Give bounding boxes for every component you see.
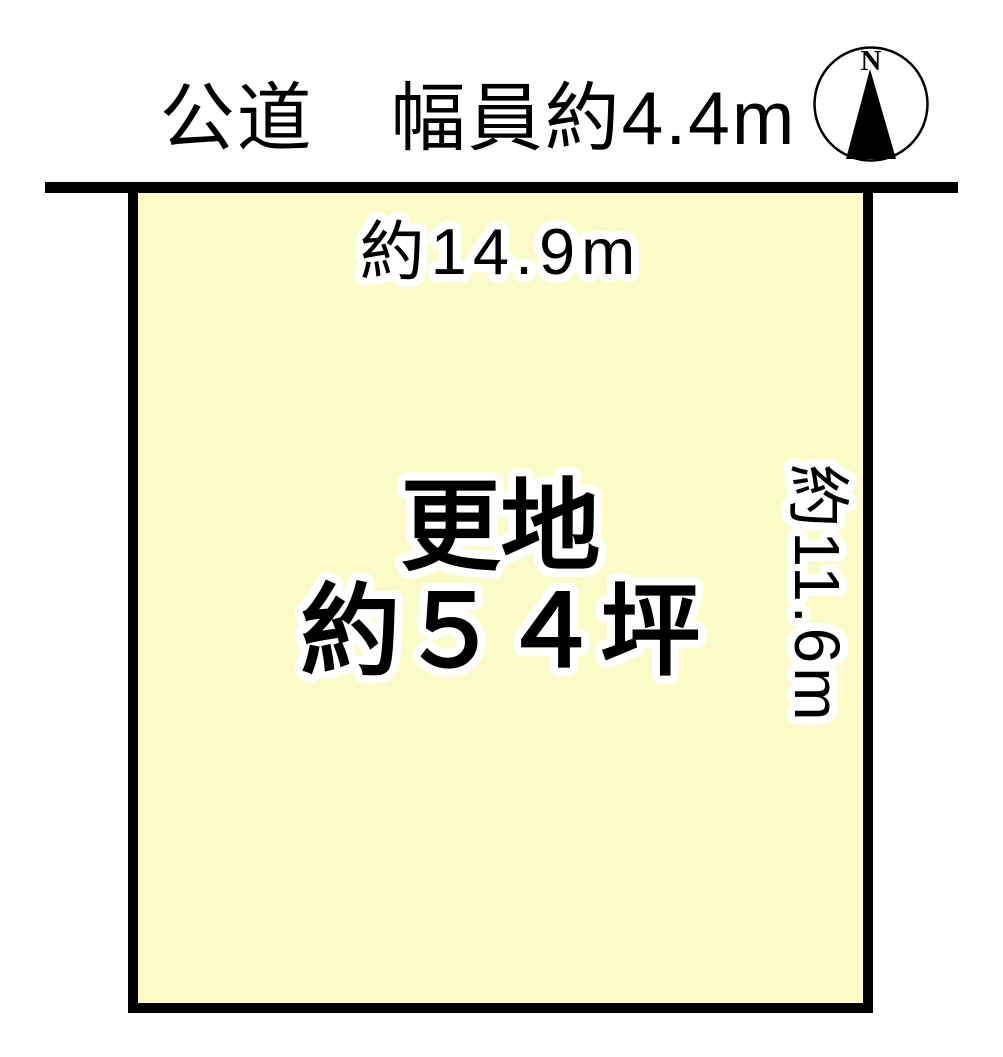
site-plan-canvas: 公道 幅員約4.4m N 約14.9m 更地 約５４坪 約11.6m xyxy=(0,0,1003,1057)
road-label: 公道 幅員約4.4m xyxy=(58,76,898,160)
land-plot: 約14.9m 更地 約５４坪 約11.6m xyxy=(128,183,873,1013)
plot-label-line1: 更地 xyxy=(138,475,863,580)
plot-label-line2: 約５４坪 xyxy=(138,580,863,685)
top-dimension-label: 約14.9m xyxy=(138,217,863,287)
side-dimension-label: 約11.6m xyxy=(783,444,851,744)
compass-icon: N xyxy=(812,45,930,163)
compass-north-label: N xyxy=(812,46,930,76)
plot-label: 更地 約５４坪 xyxy=(138,475,863,685)
